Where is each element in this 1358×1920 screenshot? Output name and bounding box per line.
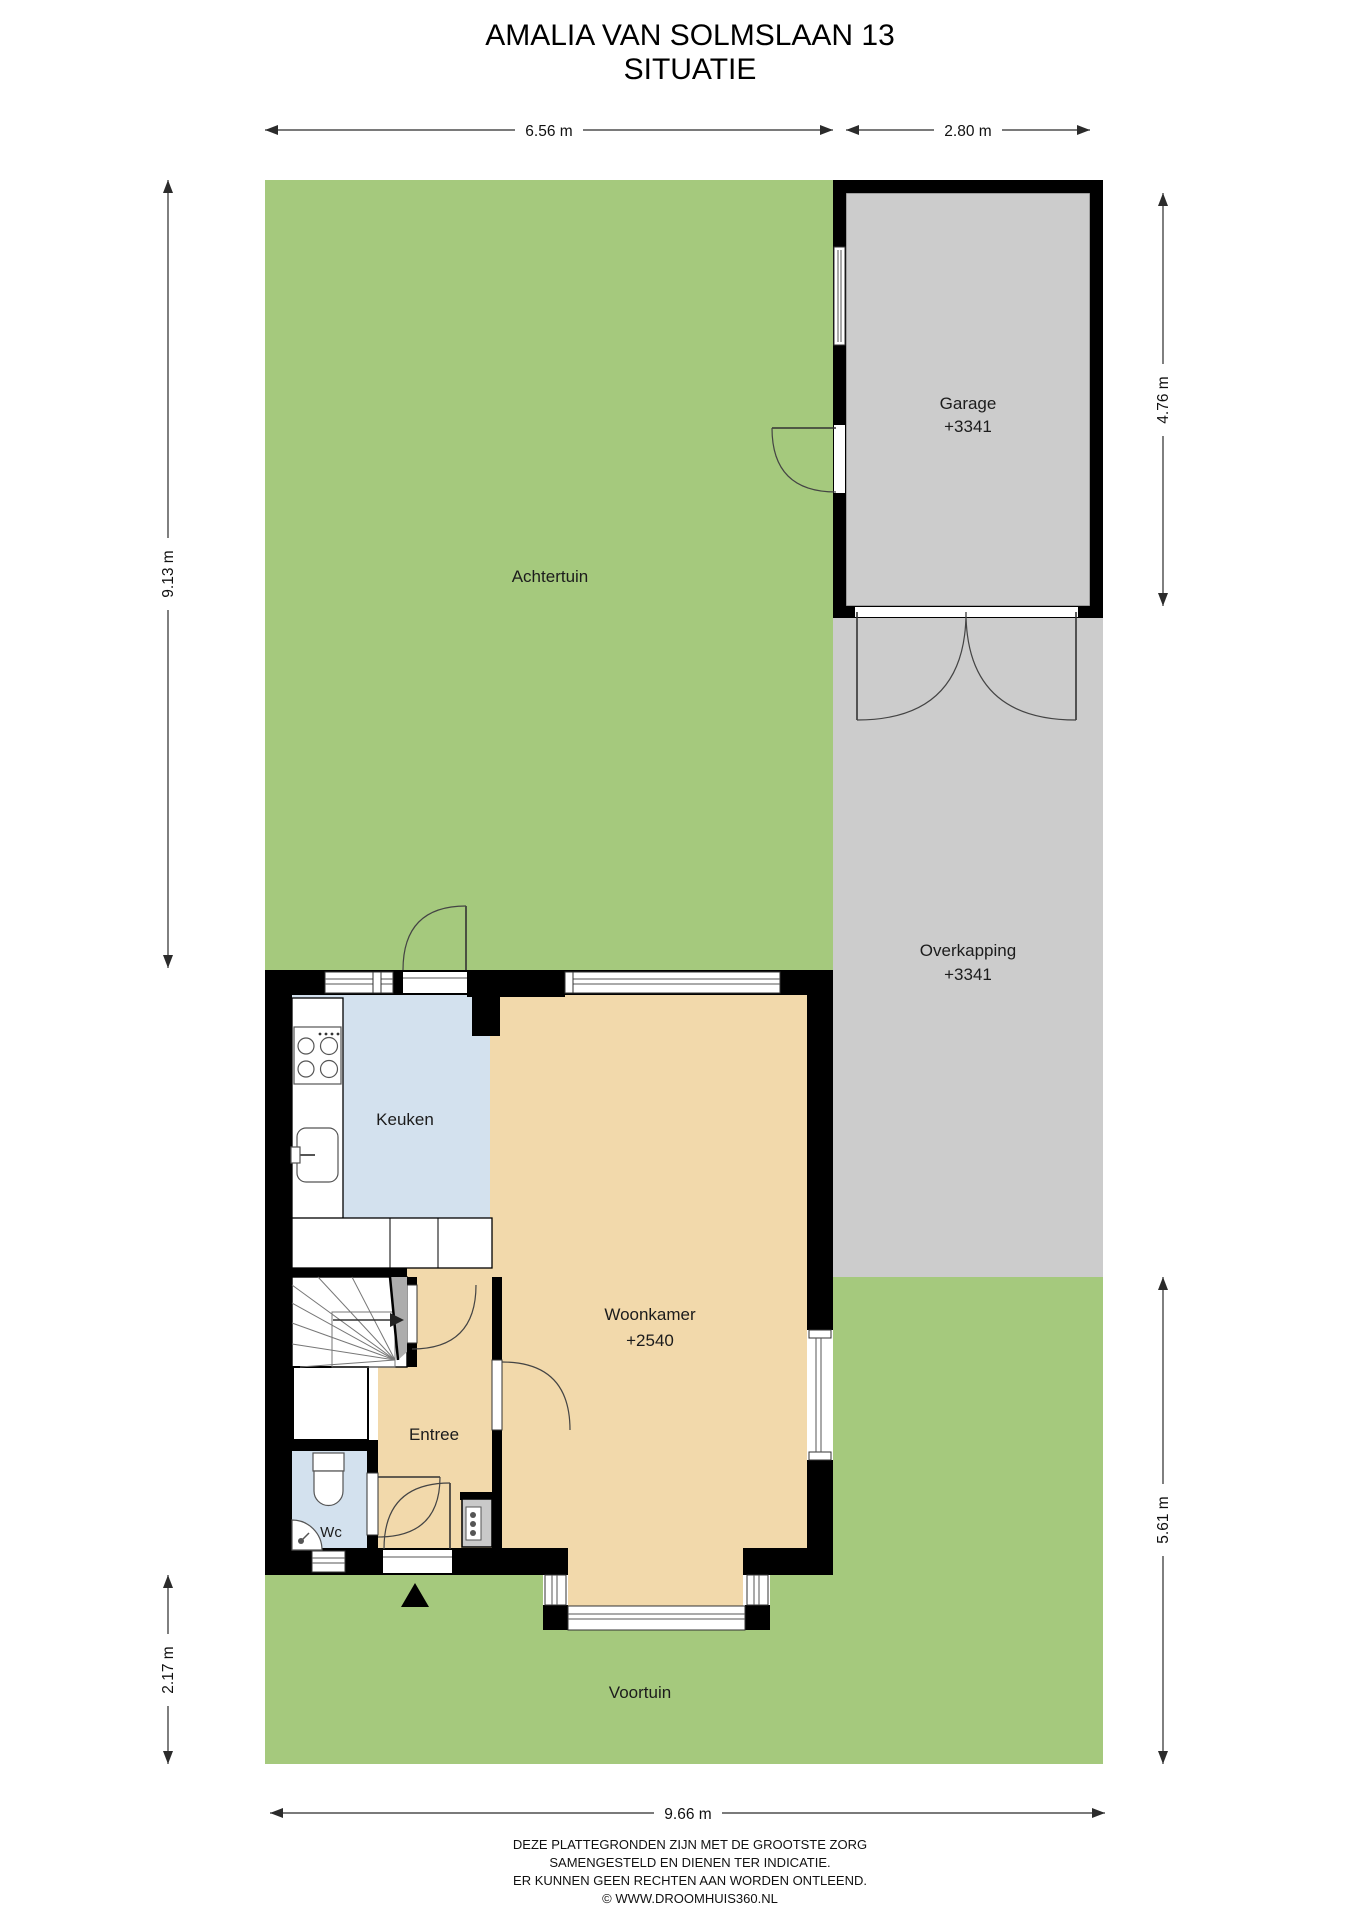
dimension-bottom: 9.66 m bbox=[270, 1803, 1105, 1823]
arrow-down-icon bbox=[1158, 593, 1168, 606]
dimension-right-lower: 5.61 m bbox=[1152, 1277, 1174, 1764]
garage-label: Garage bbox=[940, 394, 997, 413]
garage-wall-right bbox=[1090, 180, 1103, 618]
arrow-left-icon bbox=[846, 125, 859, 135]
under-stair-closet bbox=[293, 1367, 368, 1440]
floorplan-drawing: Achtertuin Garage +3341 Overkapping +334… bbox=[0, 0, 1358, 1920]
kitchen-window-mullion bbox=[373, 972, 381, 993]
arrow-right-icon bbox=[820, 125, 833, 135]
page-subtitle: SITUATIE bbox=[624, 53, 757, 86]
wc-window bbox=[312, 1551, 345, 1572]
arrow-left-icon bbox=[270, 1808, 283, 1818]
dimension-top-right: 2.80 m bbox=[846, 120, 1090, 140]
footer-copyright: © WWW.DROOMHUIS360.NL bbox=[602, 1891, 778, 1906]
toilet-icon bbox=[313, 1453, 344, 1506]
living-window-right-cap bbox=[809, 1452, 831, 1460]
meter-dial bbox=[470, 1530, 476, 1536]
footer-disclaimer: DEZE PLATTEGRONDEN ZIJN MET DE GROOTSTE … bbox=[513, 1837, 867, 1906]
toilet-tank bbox=[313, 1453, 344, 1471]
arrow-right-icon bbox=[1092, 1808, 1105, 1818]
arrow-up-icon bbox=[163, 180, 173, 193]
wall-kitchen-hall bbox=[292, 1268, 407, 1277]
front-door-opening bbox=[383, 1550, 452, 1573]
meter-cabinet-icon bbox=[462, 1499, 492, 1547]
dimension-top-left: 6.56 m bbox=[265, 120, 833, 140]
dimension-label: 2.80 m bbox=[944, 123, 991, 140]
meter-dial bbox=[470, 1521, 476, 1527]
bay-window-right bbox=[747, 1575, 768, 1605]
woonkamer-level: +2540 bbox=[626, 1331, 674, 1350]
keuken-label: Keuken bbox=[376, 1110, 434, 1129]
house-wall-right bbox=[807, 990, 833, 1575]
floorplan-page: Achtertuin Garage +3341 Overkapping +334… bbox=[0, 0, 1358, 1920]
footer-line-1: DEZE PLATTEGRONDEN ZIJN MET DE GROOTSTE … bbox=[513, 1837, 867, 1852]
woonkamer-label: Woonkamer bbox=[604, 1305, 696, 1324]
living-window-top bbox=[565, 972, 780, 993]
garage-side-door-opening bbox=[834, 425, 845, 493]
pier-top bbox=[467, 970, 565, 997]
garage-wall-top bbox=[833, 180, 1103, 193]
pier-kitchen-living bbox=[472, 995, 500, 1036]
footer-line-3: ER KUNNEN GEEN RECHTEN AAN WORDEN ONTLEE… bbox=[513, 1873, 867, 1888]
kitchen-counter-bottom bbox=[292, 1218, 492, 1268]
arrow-right-icon bbox=[1077, 125, 1090, 135]
arrow-left-icon bbox=[265, 125, 278, 135]
bay-pier-left bbox=[543, 1605, 568, 1630]
arrow-up-icon bbox=[163, 1575, 173, 1588]
bay-window-left bbox=[545, 1575, 566, 1605]
kitchen-window bbox=[325, 972, 393, 993]
toilet-bowl bbox=[314, 1471, 343, 1506]
footer-line-2: SAMENGESTELD EN DIENEN TER INDICATIE. bbox=[549, 1855, 830, 1870]
kitchen-sink-icon bbox=[291, 1128, 338, 1182]
staircase-area bbox=[292, 1277, 407, 1367]
stove-icon bbox=[294, 1027, 341, 1084]
dimension-label: 4.76 m bbox=[1155, 376, 1172, 423]
dimension-right-upper: 4.76 m bbox=[1152, 193, 1174, 606]
garage-wall-left bbox=[833, 180, 846, 618]
meter-dial bbox=[470, 1512, 476, 1518]
dimension-label: 2.17 m bbox=[160, 1646, 177, 1693]
wc-door-opening bbox=[367, 1473, 378, 1535]
stove-knob bbox=[337, 1033, 340, 1036]
sink-tap bbox=[291, 1147, 300, 1163]
dimension-label: 6.56 m bbox=[525, 123, 572, 140]
arrow-up-icon bbox=[1158, 1277, 1168, 1290]
overkapping-level: +3341 bbox=[944, 965, 992, 984]
house-wall-left bbox=[265, 970, 292, 1575]
page-title: AMALIA VAN SOLMSLAAN 13 bbox=[485, 19, 895, 52]
garage-window bbox=[834, 247, 845, 345]
arrow-up-icon bbox=[1158, 193, 1168, 206]
living-window-jamb bbox=[565, 972, 573, 993]
arrow-down-icon bbox=[163, 955, 173, 968]
dimension-left-upper: 9.13 m bbox=[157, 180, 179, 968]
bay-window-front bbox=[568, 1606, 745, 1630]
living-window-right-cap bbox=[809, 1330, 831, 1338]
bay-pier-right bbox=[745, 1605, 770, 1630]
dimension-left-lower: 2.17 m bbox=[157, 1575, 179, 1764]
achtertuin-label: Achtertuin bbox=[512, 567, 589, 586]
wall-closet-wc bbox=[292, 1440, 378, 1451]
overkapping-label: Overkapping bbox=[920, 941, 1016, 960]
stove-knob bbox=[319, 1033, 322, 1036]
voortuin-label: Voortuin bbox=[609, 1683, 671, 1702]
dimension-label: 9.66 m bbox=[664, 1806, 711, 1823]
arrow-down-icon bbox=[1158, 1751, 1168, 1764]
living-door-opening bbox=[492, 1360, 502, 1430]
stove-knob bbox=[325, 1033, 328, 1036]
bay-floor bbox=[568, 1548, 743, 1610]
arrow-down-icon bbox=[163, 1751, 173, 1764]
garden-door-opening bbox=[403, 972, 467, 993]
house-wall-front-right bbox=[743, 1548, 833, 1575]
stove-knob bbox=[331, 1033, 334, 1036]
living-window-right bbox=[807, 1330, 833, 1460]
hall-door-opening bbox=[407, 1285, 417, 1343]
dimension-label: 5.61 m bbox=[1155, 1496, 1172, 1543]
woonkamer-floor bbox=[490, 995, 807, 1548]
garage-level: +3341 bbox=[944, 417, 992, 436]
wc-label: Wc bbox=[320, 1524, 342, 1541]
entree-label: Entree bbox=[409, 1425, 459, 1444]
dimension-label: 9.13 m bbox=[160, 550, 177, 597]
